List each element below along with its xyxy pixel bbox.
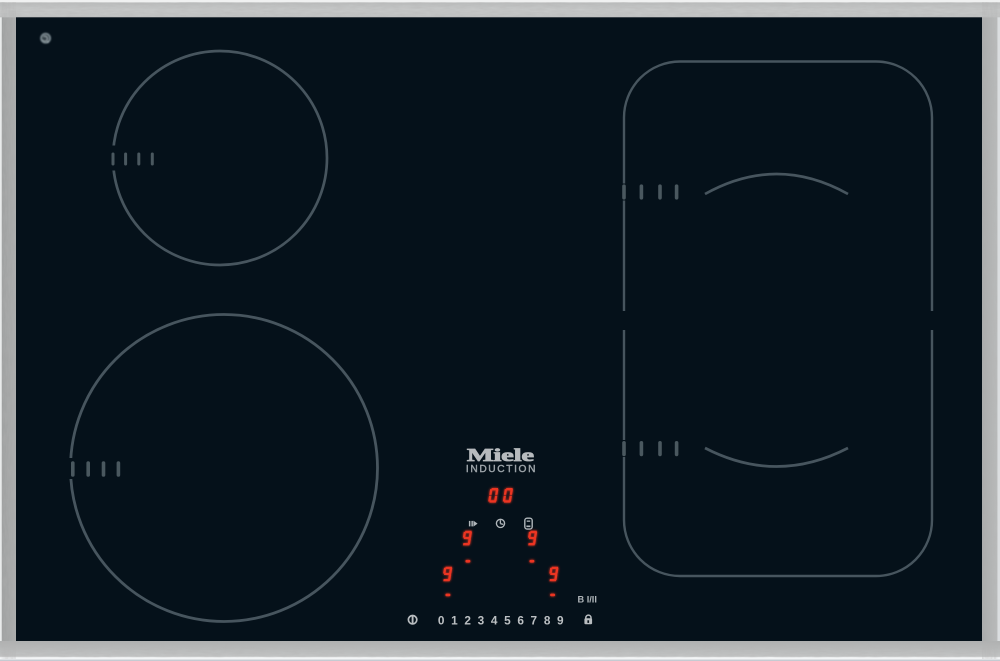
svg-text:INDUCTION: INDUCTION [466, 464, 537, 475]
svg-text:B I/II: B I/II [578, 595, 597, 605]
svg-text:Miele: Miele [467, 446, 534, 466]
